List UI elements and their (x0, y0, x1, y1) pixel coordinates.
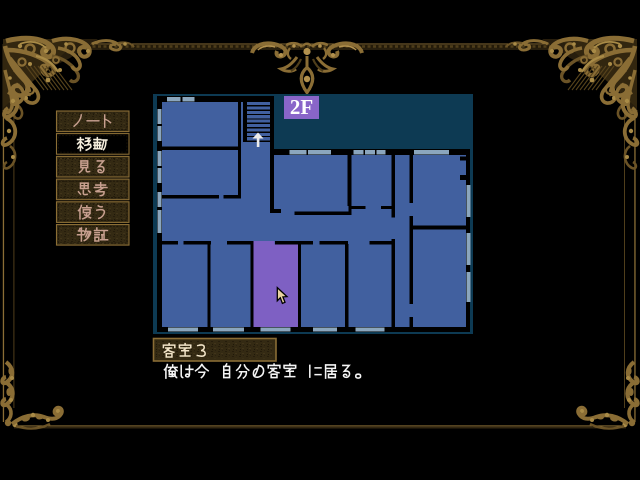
svg-text:2F: 2F (290, 95, 313, 119)
